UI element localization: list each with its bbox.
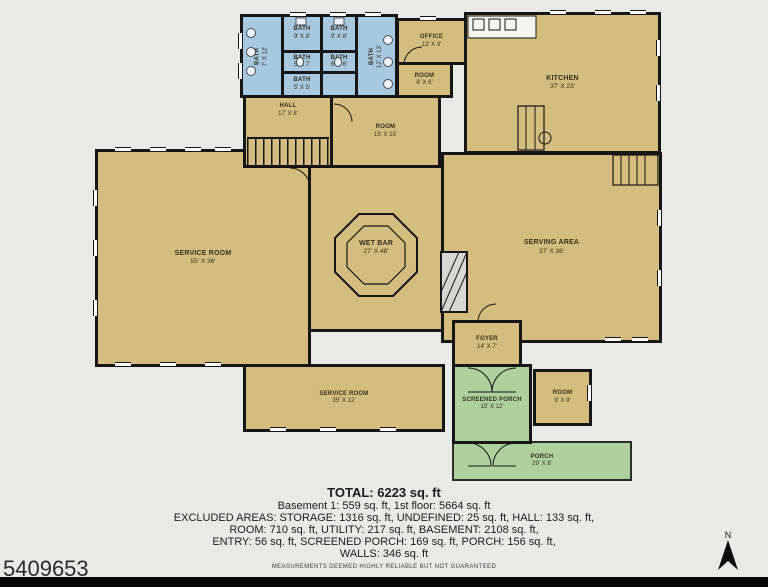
room-dims: 29' X 8': [532, 461, 552, 469]
room-label: HALL 17' X 8': [278, 103, 298, 118]
room-dims: 9' X 8': [294, 34, 310, 42]
room-label: BATH 7' X 12': [254, 46, 269, 66]
room-name: BATH: [293, 26, 310, 34]
room-label: WET BAR 27' X 48': [359, 240, 393, 257]
room-dims: 55' X 36': [191, 258, 216, 266]
room-dims: 9' X 9': [554, 398, 570, 406]
room-label: OFFICE 13' X 9': [420, 34, 443, 49]
window-mark: [205, 362, 221, 367]
room-label: ROOM 8' X 6': [415, 73, 434, 88]
window-mark: [330, 12, 346, 17]
room-name: WET BAR: [359, 240, 393, 249]
window-mark: [320, 427, 336, 432]
room-label: BATH 5' X 7': [293, 55, 310, 70]
room-serving-area: SERVING AREA 37' X 36': [441, 152, 662, 343]
window-mark: [605, 337, 621, 342]
room-name: SCREENED PORCH: [462, 397, 521, 405]
window-mark: [215, 147, 231, 152]
window-mark: [270, 427, 286, 432]
room-label: BATH 5' X 5': [293, 77, 310, 92]
room-wet-bar: WET BAR 27' X 48': [308, 164, 444, 332]
window-mark: [632, 337, 648, 342]
window-mark: [150, 147, 166, 152]
window-mark: [656, 85, 661, 101]
window-mark: [595, 10, 611, 15]
summary-line: Basement 1: 559 sq. ft, 1st floor: 5664 …: [0, 500, 768, 512]
window-mark: [290, 12, 306, 17]
window-mark: [420, 16, 436, 21]
room-dims: 13' X 9': [422, 42, 442, 50]
room-kitchen: KITCHEN 37' X 23': [464, 12, 661, 154]
room-bath-9x8-a: BATH 9' X 8': [281, 14, 323, 53]
room-bath-12x13: BATH 12' X 13': [355, 14, 398, 98]
window-mark: [238, 33, 243, 49]
room-label: BATH 9' X 8': [330, 26, 347, 41]
room-screened-porch: SCREENED PORCH 15' X 12': [452, 364, 532, 444]
window-mark: [657, 270, 662, 286]
room-dims: 14' X 7': [477, 344, 497, 352]
room-dims: 37' X 23': [550, 83, 575, 91]
room-dims: 9' X 8': [331, 34, 347, 42]
window-mark: [238, 63, 243, 79]
room-name: SERVICE ROOM: [175, 250, 232, 259]
room-bath-9x8-b: BATH 9' X 8': [320, 14, 358, 53]
window-mark: [630, 10, 646, 15]
room-dims: 37' X 36': [539, 248, 564, 256]
room-label: BATH 12' X 13': [369, 45, 384, 68]
room-label: ROOM 15' X 15': [374, 124, 397, 139]
summary-line: WALLS: 346 sq. ft: [0, 548, 768, 560]
room-label: FOYER 14' X 7': [476, 336, 498, 351]
room-bath-5x5: BATH 5' X 5': [281, 71, 323, 98]
room-name: BATH: [293, 55, 310, 63]
window-mark: [115, 362, 131, 367]
window-mark: [587, 385, 592, 401]
room-name: PORCH: [531, 454, 554, 462]
window-mark: [365, 12, 381, 17]
room-dims: 8' X 6': [416, 80, 432, 88]
room-foyer: FOYER 14' X 7': [452, 320, 522, 367]
room-name: OFFICE: [420, 34, 443, 42]
room-label: KITCHEN 37' X 23': [546, 75, 579, 92]
window-mark: [93, 190, 98, 206]
room-name: KITCHEN: [546, 75, 579, 84]
staircase: [247, 137, 329, 167]
room-9x9: ROOM 9' X 9': [533, 369, 592, 426]
room-name: SERVING AREA: [524, 239, 579, 248]
window-mark: [657, 210, 662, 226]
room-dims: 27' X 48': [364, 248, 389, 256]
room-bath-7x12: BATH 7' X 12': [240, 14, 284, 98]
room-8x6: ROOM 8' X 6': [396, 62, 453, 98]
room-dims: 5' X 5': [294, 85, 310, 93]
room-porch: PORCH 29' X 8': [452, 441, 632, 481]
room-service-room-large: SERVICE ROOM 55' X 36': [95, 149, 311, 367]
summary-line: ROOM: 710 sq. ft, UTILITY: 217 sq. ft, B…: [0, 524, 768, 536]
room-dims: 15' X 12': [481, 404, 504, 412]
room-dims: 5' X 7': [294, 62, 310, 70]
room-dims: 12' X 13': [376, 45, 384, 68]
room-dims: 35' X 12': [333, 398, 356, 406]
north-arrow-icon: [716, 540, 740, 572]
room-name: HALL: [280, 103, 297, 111]
bottom-bar: [0, 577, 768, 587]
room-name: BATH: [293, 77, 310, 85]
room-dims: 6' X 6': [331, 62, 347, 70]
room-dims: 17' X 8': [278, 111, 298, 119]
room-label: SERVICE ROOM 35' X 12': [320, 391, 369, 406]
window-mark: [550, 10, 566, 15]
room-label: SERVING AREA 37' X 36': [524, 239, 579, 256]
window-mark: [160, 362, 176, 367]
compass-north: N: [714, 531, 742, 577]
room-name: BATH: [330, 55, 347, 63]
room-label: ROOM 9' X 9': [553, 390, 572, 405]
room-label: SCREENED PORCH 15' X 12': [462, 397, 521, 412]
summary-line: EXCLUDED AREAS: STORAGE: 1316 sq. ft, UN…: [0, 512, 768, 524]
room-name: ROOM: [553, 390, 572, 398]
floor-plan-page: PORCH 29' X 8' SERVICE ROOM 55' X 36' SE…: [0, 0, 768, 587]
area-summary: TOTAL: 6223 sq. ft Basement 1: 559 sq. f…: [0, 485, 768, 560]
room-label: SERVICE ROOM 55' X 36': [175, 250, 232, 267]
room-15x15: ROOM 15' X 15': [330, 95, 441, 168]
room-office: OFFICE 13' X 9': [396, 18, 467, 65]
room-name: ROOM: [376, 124, 395, 132]
compass-label: N: [714, 531, 742, 540]
room-name: BATH: [369, 47, 377, 64]
window-mark: [115, 147, 131, 152]
window-mark: [185, 147, 201, 152]
summary-line: ENTRY: 56 sq. ft, SCREENED PORCH: 169 sq…: [0, 536, 768, 548]
floor-plan: PORCH 29' X 8' SERVICE ROOM 55' X 36' SE…: [0, 0, 768, 500]
room-dims: 7' X 12': [262, 46, 270, 66]
disclaimer-text: MEASUREMENTS DEEMED HIGHLY RELIABLE BUT …: [0, 564, 768, 570]
room-name: BATH: [330, 26, 347, 34]
total-area: TOTAL: 6223 sq. ft: [0, 485, 768, 500]
room-service-room-small: SERVICE ROOM 35' X 12': [243, 364, 445, 432]
room-label: BATH 6' X 6': [330, 55, 347, 70]
room-label: BATH 9' X 8': [293, 26, 310, 41]
room-dims: 15' X 15': [374, 132, 397, 140]
room-name: ROOM: [415, 73, 434, 81]
bath-corridor: [320, 71, 358, 98]
window-mark: [93, 300, 98, 316]
room-label: PORCH 29' X 8': [531, 454, 554, 469]
room-name: SERVICE ROOM: [320, 391, 369, 399]
window-mark: [93, 240, 98, 256]
window-mark: [656, 40, 661, 56]
room-name: FOYER: [476, 336, 498, 344]
window-mark: [380, 427, 396, 432]
